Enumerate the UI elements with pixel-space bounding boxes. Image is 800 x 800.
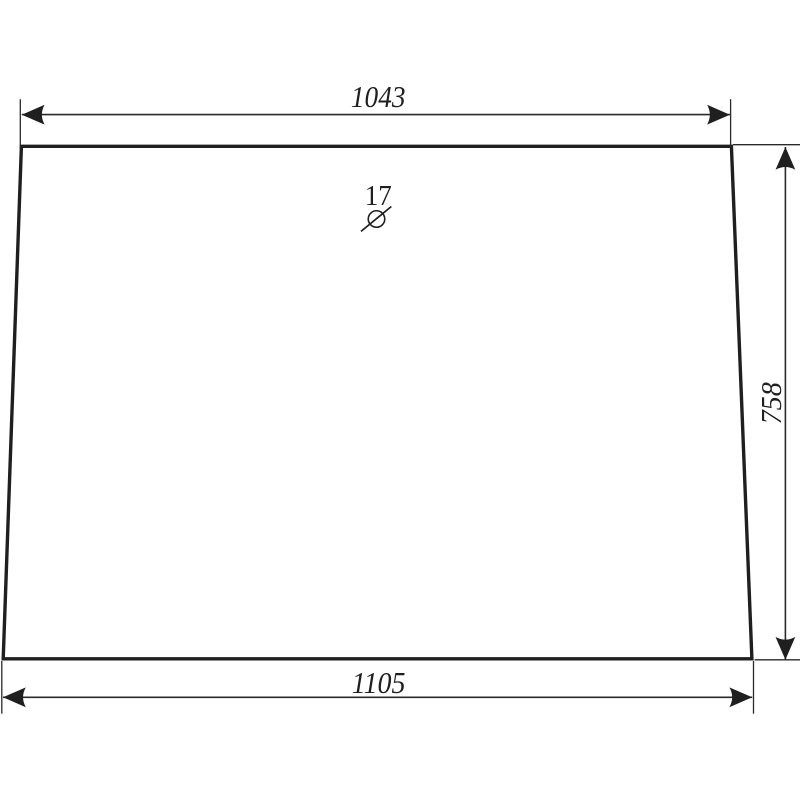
svg-text:17: 17 [365,181,392,212]
svg-text:758: 758 [756,382,788,425]
svg-text:1105: 1105 [352,666,406,700]
svg-text:1043: 1043 [351,80,406,114]
